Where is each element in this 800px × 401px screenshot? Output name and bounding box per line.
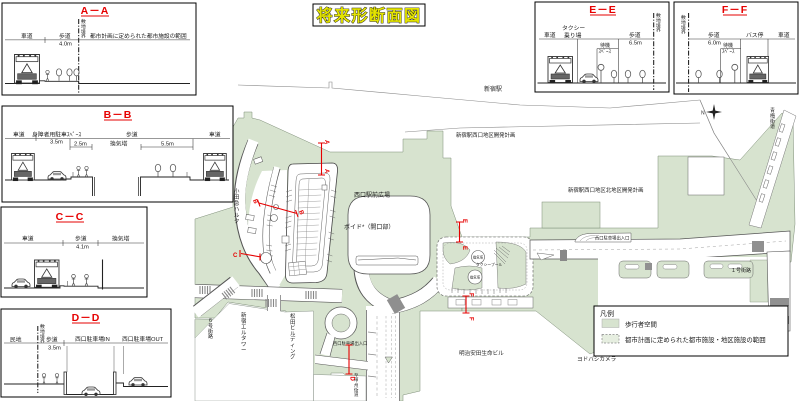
svg-text:敷地境界: 敷地境界 (40, 323, 45, 345)
svg-text:換気塔: 換気塔 (470, 275, 481, 280)
svg-text:バス停: バス停 (746, 31, 764, 39)
svg-text:車道: 車道 (13, 131, 25, 139)
svg-text:D: D (349, 377, 355, 382)
svg-text:車道: 車道 (778, 31, 790, 39)
svg-text:敷地境界: 敷地境界 (81, 18, 86, 40)
svg-text:西口駐車場OUT: 西口駐車場OUT (122, 335, 164, 343)
svg-text:都市計画に定められた都市施設の範囲: 都市計画に定められた都市施設の範囲 (90, 32, 187, 40)
svg-text:タクシープール: タクシープール (476, 262, 503, 267)
svg-text:N: N (701, 111, 705, 117)
svg-text:4.1m: 4.1m (76, 245, 89, 251)
svg-text:F: F (468, 317, 474, 321)
svg-text:将来形断面図: 将来形断面図 (316, 6, 421, 25)
svg-text:E: E (461, 246, 467, 250)
svg-text:車道: 車道 (22, 235, 34, 243)
svg-text:歩行者空間: 歩行者空間 (625, 320, 657, 329)
svg-text:5.5m: 5.5m (161, 142, 174, 148)
svg-text:歩道: 歩道 (708, 31, 720, 39)
svg-text:西口駐車場出入口: 西口駐車場出入口 (333, 340, 367, 347)
svg-text:新宿駅: 新宿駅 (484, 85, 502, 93)
svg-text:敷地境界: 敷地境界 (656, 12, 661, 34)
svg-text:換気塔: 換気塔 (112, 235, 130, 243)
svg-text:4.0m: 4.0m (59, 42, 72, 48)
svg-text:3.5m: 3.5m (50, 140, 63, 146)
svg-text:タクシー: タクシー (562, 24, 585, 32)
svg-text:明治安田生命ビル: 明治安田生命ビル (459, 349, 504, 357)
svg-text:車道: 車道 (209, 131, 221, 139)
svg-text:敷地境界: 敷地境界 (681, 14, 686, 36)
svg-text:A: A (323, 169, 329, 174)
svg-text:ｽﾍﾟｰｽ: ｽﾍﾟｰｽ (722, 48, 735, 55)
svg-text:F－F: F－F (722, 4, 748, 16)
svg-text:青梅街道: 青梅街道 (770, 107, 775, 130)
svg-text:新宿駅西口地区北地区開発計画: 新宿駅西口地区北地区開発計画 (568, 186, 643, 194)
svg-text:換気塔: 換気塔 (473, 255, 484, 260)
svg-text:待機: 待機 (600, 42, 610, 49)
svg-text:歩道: 歩道 (629, 31, 641, 39)
svg-text:凡例: 凡例 (600, 309, 614, 318)
svg-text:小田急ハルク: 小田急ハルク (234, 187, 240, 225)
svg-text:西口駅前広場: 西口駅前広場 (354, 191, 390, 199)
svg-text:松田ビルディング: 松田ビルディング (290, 312, 296, 361)
svg-text:A－A: A－A (81, 5, 110, 17)
svg-text:C－C: C－C (56, 211, 85, 223)
svg-text:新宿駅西口地区開発計画: 新宿駅西口地区開発計画 (456, 131, 515, 139)
svg-text:C: C (233, 253, 238, 259)
svg-text:F: F (468, 293, 474, 297)
svg-text:歩道: 歩道 (59, 32, 71, 40)
svg-text:6.5m: 6.5m (629, 41, 642, 47)
svg-text:車道: 車道 (21, 32, 33, 40)
svg-text:B－B: B－B (104, 109, 133, 121)
svg-text:ｽﾍﾟｰｽ: ｽﾍﾟｰｽ (599, 48, 612, 55)
svg-text:車道: 車道 (544, 31, 556, 39)
svg-text:E: E (461, 219, 467, 223)
svg-text:６号街路: ６号街路 (208, 318, 213, 340)
svg-text:D－D: D－D (72, 312, 101, 324)
svg-text:１号街路: １号街路 (731, 267, 751, 274)
svg-text:A: A (323, 140, 329, 145)
svg-text:西口駐車場IN: 西口駐車場IN (75, 335, 110, 343)
svg-text:ボイド*（開口部）: ボイド*（開口部） (344, 223, 394, 231)
svg-text:歩道: 歩道 (126, 131, 138, 139)
svg-text:西口駐車場出入口: 西口駐車場出入口 (595, 235, 629, 242)
svg-text:待機: 待機 (723, 42, 733, 49)
svg-text:乗り場: 乗り場 (564, 32, 582, 40)
svg-text:歩道: 歩道 (46, 336, 58, 344)
svg-text:E－E: E－E (589, 4, 617, 16)
svg-text:換気塔: 換気塔 (110, 140, 128, 148)
svg-text:2.5m: 2.5m (74, 142, 87, 148)
svg-text:歩道: 歩道 (75, 235, 87, 243)
svg-text:都市計画に定められた都市施設・地区施設の範囲: 都市計画に定められた都市施設・地区施設の範囲 (625, 335, 766, 344)
svg-text:新宿エルタワー: 新宿エルタワー (241, 311, 247, 354)
svg-text:3.5m: 3.5m (48, 346, 61, 352)
svg-text:身障者用駐車ｽﾍﾟｰｽ: 身障者用駐車ｽﾍﾟｰｽ (32, 131, 81, 139)
svg-text:ヨドバシカメラ: ヨドバシカメラ (577, 356, 616, 363)
svg-text:6.0m: 6.0m (708, 41, 721, 47)
svg-text:民地: 民地 (10, 336, 22, 344)
